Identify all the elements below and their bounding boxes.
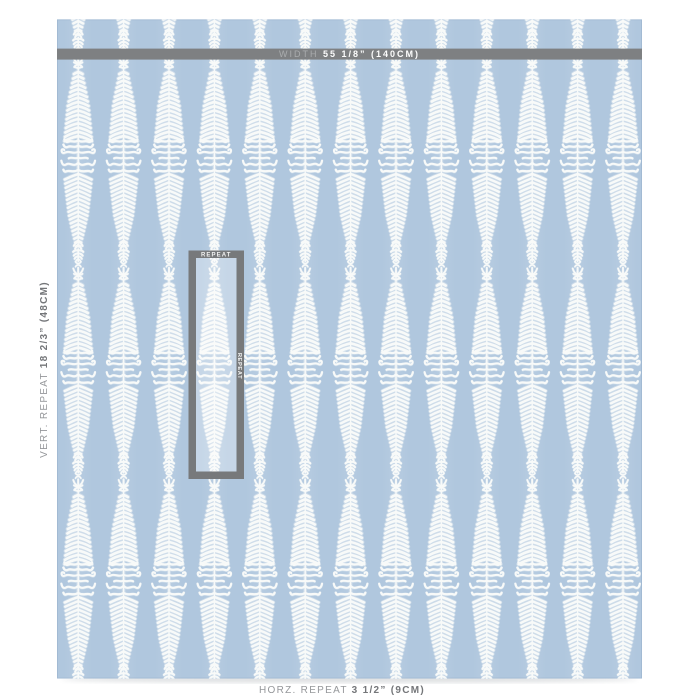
svg-text:REPEAT: REPEAT [236, 353, 242, 379]
svg-text:REPEAT: REPEAT [201, 252, 232, 258]
svg-text:VERT. REPEAT 18 2/3” (48CM): VERT. REPEAT 18 2/3” (48CM) [39, 281, 50, 458]
svg-text:HORZ. REPEAT 3 1/2” (9CM): HORZ. REPEAT 3 1/2” (9CM) [259, 685, 425, 696]
svg-text:WIDTH 55 1/8” (140CM): WIDTH 55 1/8” (140CM) [279, 49, 420, 59]
